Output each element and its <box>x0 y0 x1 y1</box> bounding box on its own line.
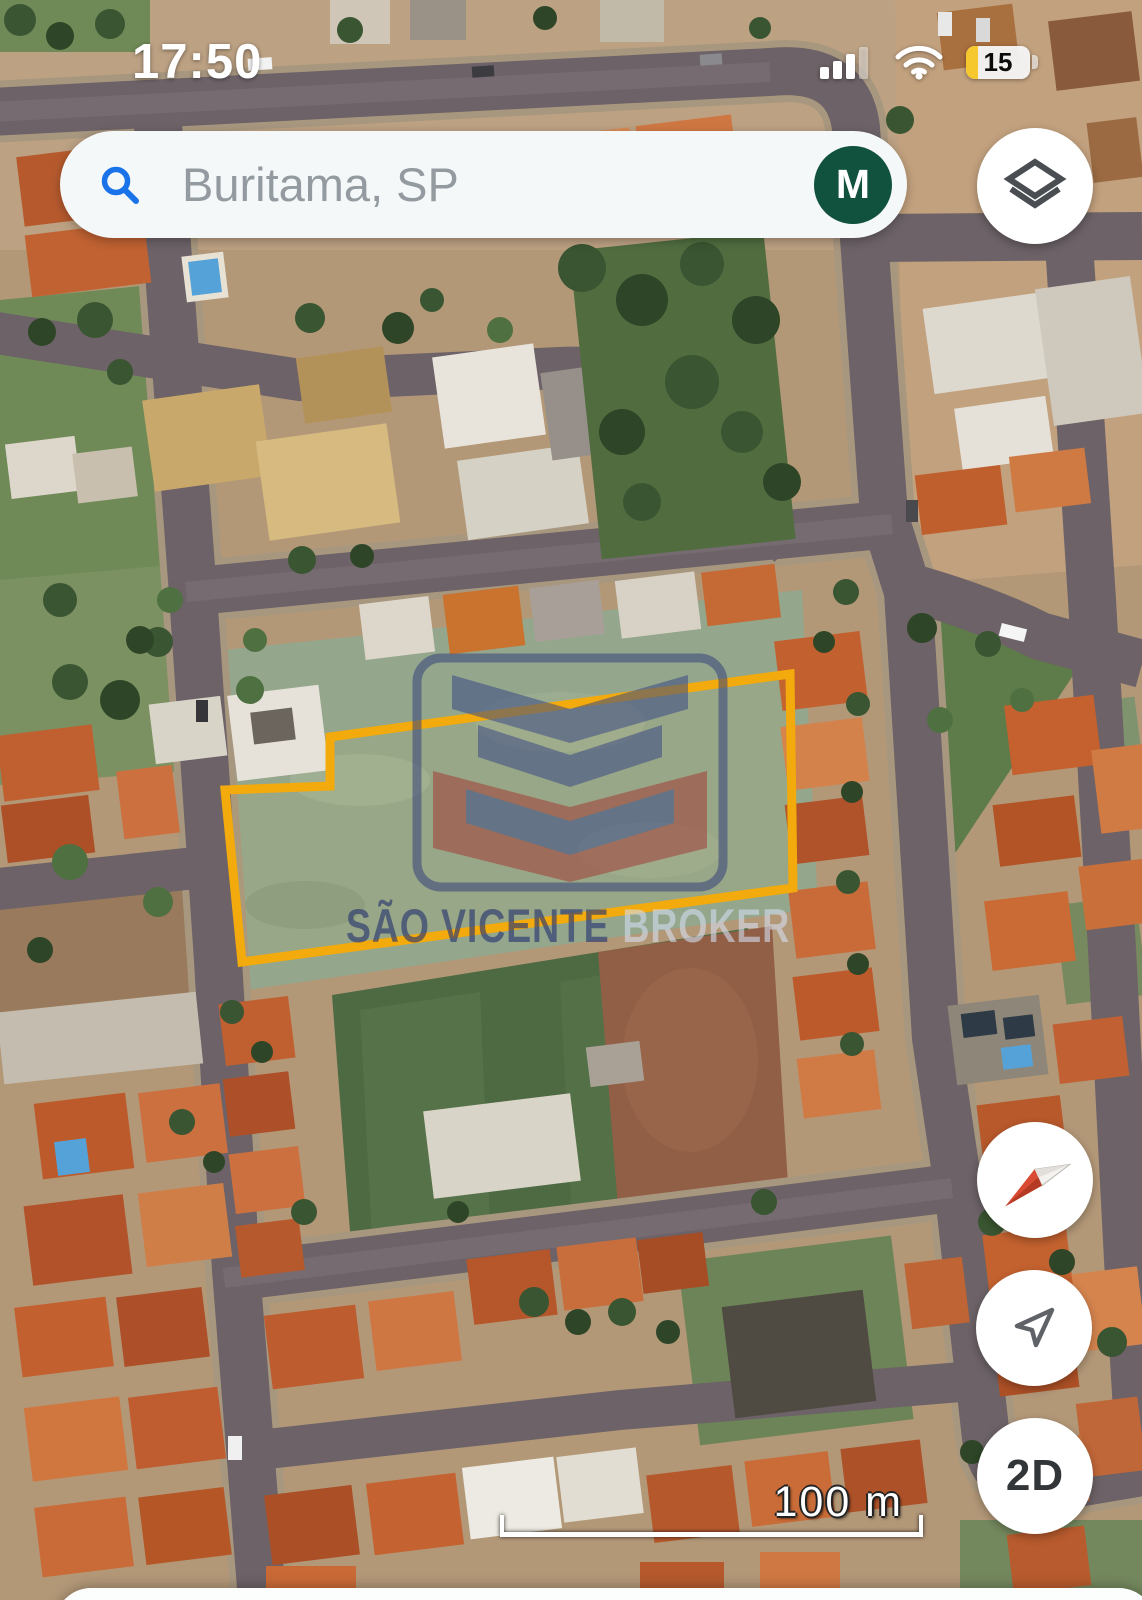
google-maps-screen: SÃO VICENTE BROKER 17:50 <box>0 0 1142 1600</box>
wifi-icon <box>894 44 944 80</box>
status-icons: 15 <box>820 44 1038 80</box>
clock: 17:50 <box>132 34 262 90</box>
battery-fill <box>966 46 978 79</box>
status-bar: 17:50 15 <box>0 0 1142 100</box>
my-location-button[interactable] <box>976 1270 1092 1386</box>
search-input[interactable]: Buritama, SP <box>182 157 814 212</box>
bottom-sheet-handle[interactable] <box>55 1588 1142 1600</box>
search-icon <box>98 163 142 207</box>
avatar-letter: M <box>836 161 870 208</box>
satellite-map[interactable] <box>0 0 1142 1600</box>
compass-button[interactable] <box>977 1122 1093 1238</box>
layers-button[interactable] <box>977 128 1093 244</box>
compass-needle-icon <box>989 1134 1081 1226</box>
battery-icon: 15 <box>966 46 1030 79</box>
scale-bar <box>500 1515 923 1537</box>
search-bar[interactable]: Buritama, SP M <box>60 131 907 238</box>
battery-percent: 15 <box>984 47 1013 78</box>
2d-toggle-button[interactable]: 2D <box>977 1418 1093 1534</box>
layers-icon <box>1003 157 1067 215</box>
navigation-arrow-icon <box>1008 1302 1060 1354</box>
account-avatar[interactable]: M <box>814 146 892 224</box>
2d-toggle-label: 2D <box>1006 1451 1064 1501</box>
cellular-signal-icon <box>820 45 872 79</box>
battery-nub <box>1032 55 1038 69</box>
